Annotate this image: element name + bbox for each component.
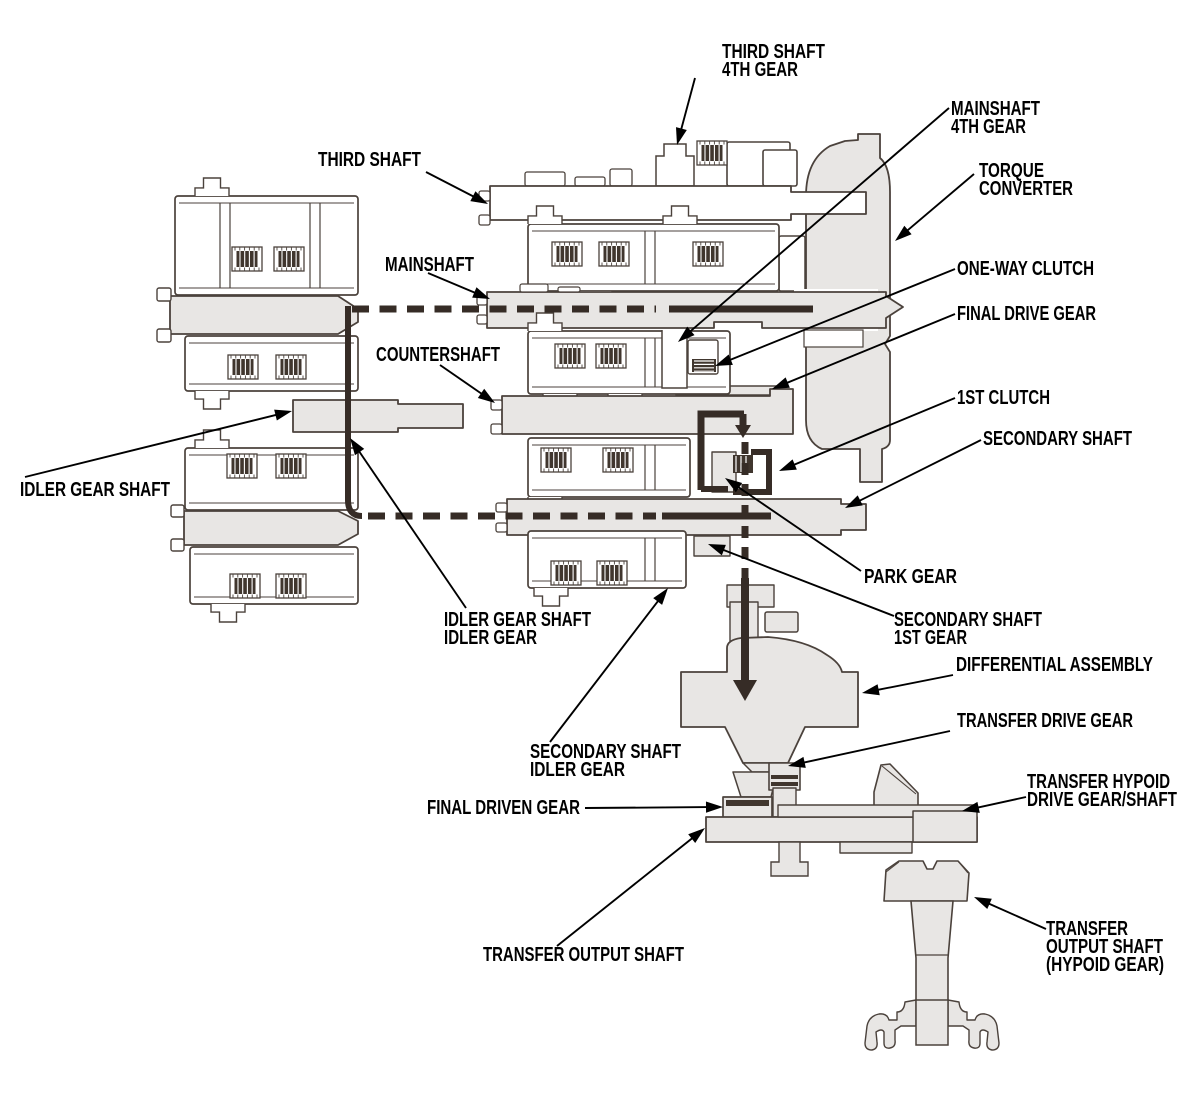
svg-text:1ST CLUTCH: 1ST CLUTCH [957,387,1050,409]
svg-text:(HYPOID GEAR): (HYPOID GEAR) [1046,954,1164,976]
svg-text:THIRD SHAFT: THIRD SHAFT [318,149,421,171]
svg-text:FINAL DRIVE GEAR: FINAL DRIVE GEAR [957,303,1096,325]
svg-text:IDLER GEAR: IDLER GEAR [444,627,537,649]
svg-text:ONE-WAY CLUTCH: ONE-WAY CLUTCH [957,258,1094,280]
svg-text:TRANSFER OUTPUT SHAFT: TRANSFER OUTPUT SHAFT [483,944,684,966]
svg-text:PARK GEAR: PARK GEAR [864,566,957,588]
svg-text:4TH GEAR: 4TH GEAR [951,116,1026,138]
svg-text:FINAL DRIVEN GEAR: FINAL DRIVEN GEAR [427,797,580,819]
svg-text:4TH GEAR: 4TH GEAR [722,59,798,81]
svg-text:IDLER GEAR: IDLER GEAR [530,759,625,781]
svg-text:DIFFERENTIAL ASSEMBLY: DIFFERENTIAL ASSEMBLY [956,654,1153,676]
svg-text:1ST GEAR: 1ST GEAR [894,627,967,649]
svg-text:CONVERTER: CONVERTER [979,178,1073,200]
svg-text:TRANSFER DRIVE GEAR: TRANSFER DRIVE GEAR [957,710,1133,732]
svg-text:DRIVE GEAR/SHAFT: DRIVE GEAR/SHAFT [1027,789,1177,811]
svg-text:IDLER GEAR SHAFT: IDLER GEAR SHAFT [20,479,170,501]
svg-text:COUNTERSHAFT: COUNTERSHAFT [376,344,500,366]
svg-text:SECONDARY SHAFT: SECONDARY SHAFT [983,428,1132,450]
svg-text:MAINSHAFT: MAINSHAFT [385,254,474,276]
